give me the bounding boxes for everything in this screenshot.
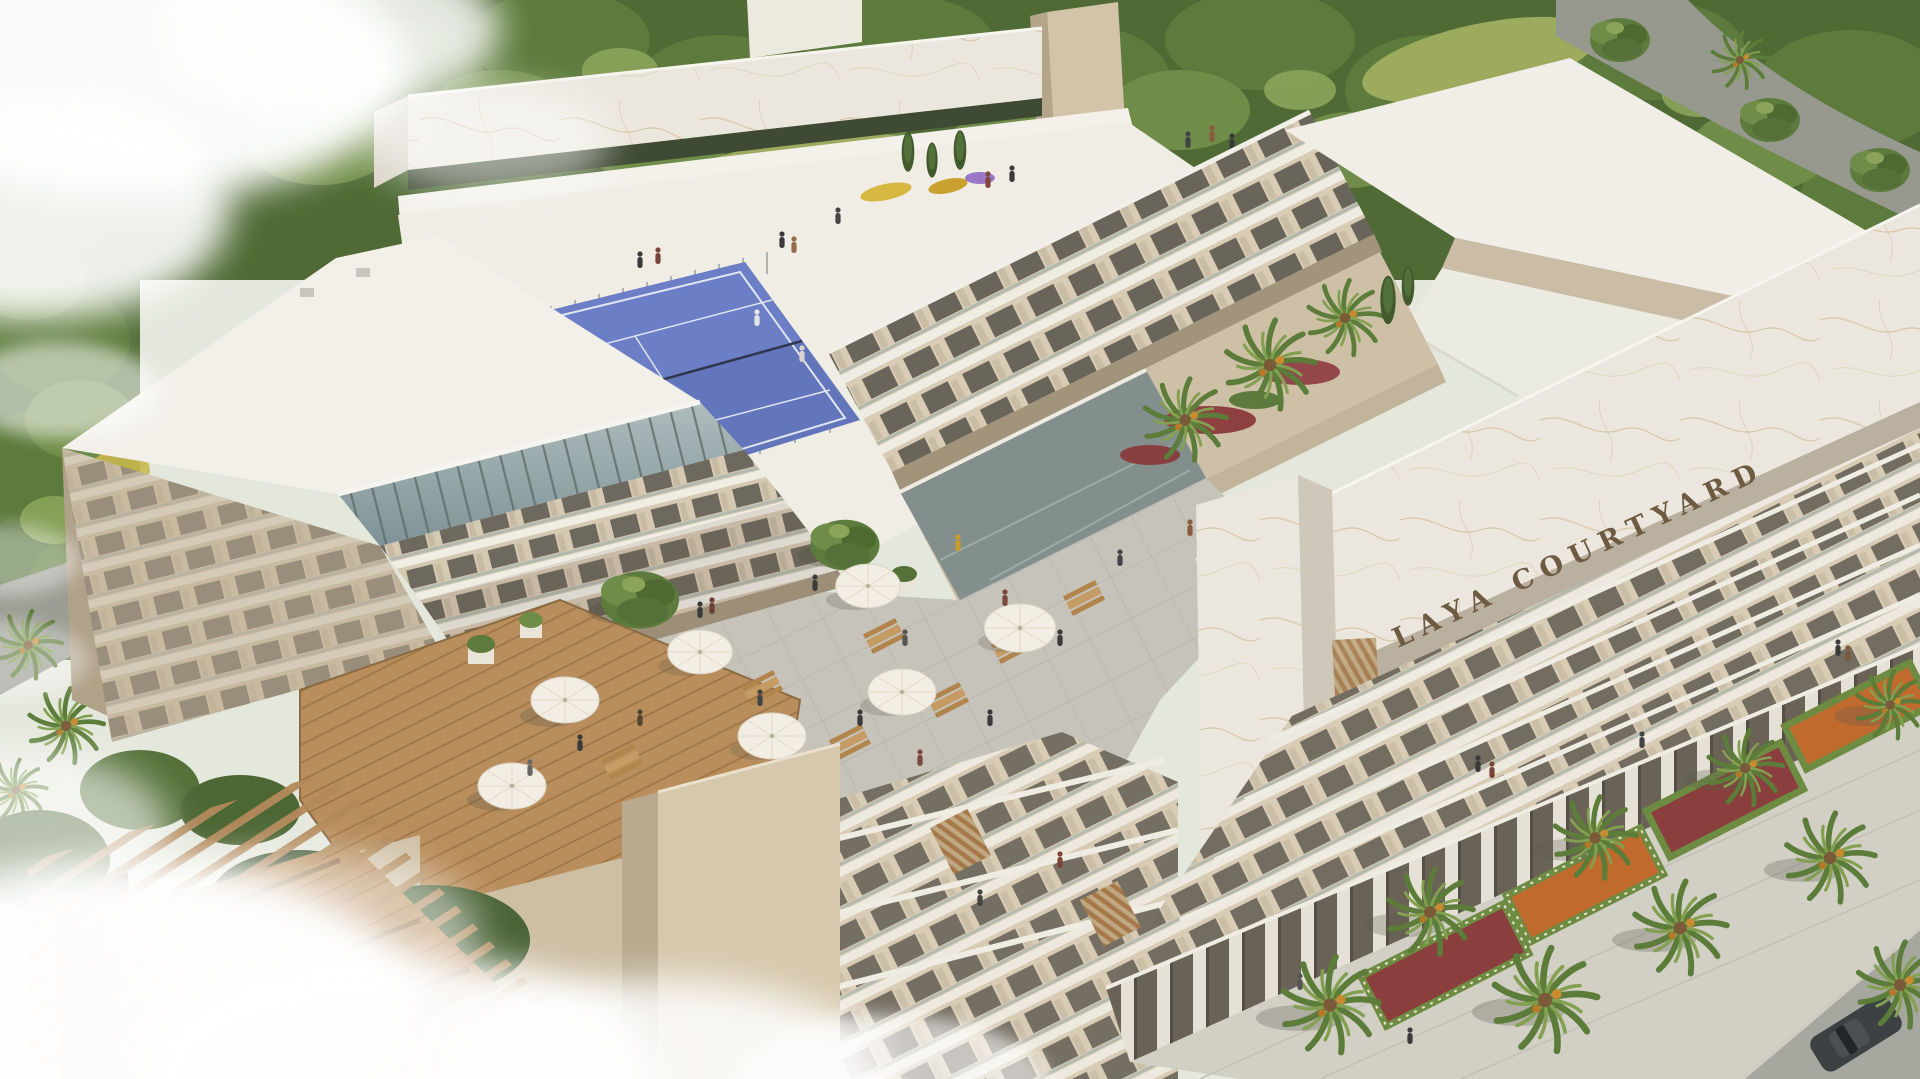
courtyard-tree [811, 520, 880, 571]
courtyard-tree [601, 571, 679, 628]
padel-player [799, 345, 804, 362]
padel-player [754, 309, 759, 326]
scene: LAYA COURTYARD [0, 0, 1920, 1079]
aerial-rendering-laya-courtyard: LAYA COURTYARD [0, 0, 1920, 1079]
